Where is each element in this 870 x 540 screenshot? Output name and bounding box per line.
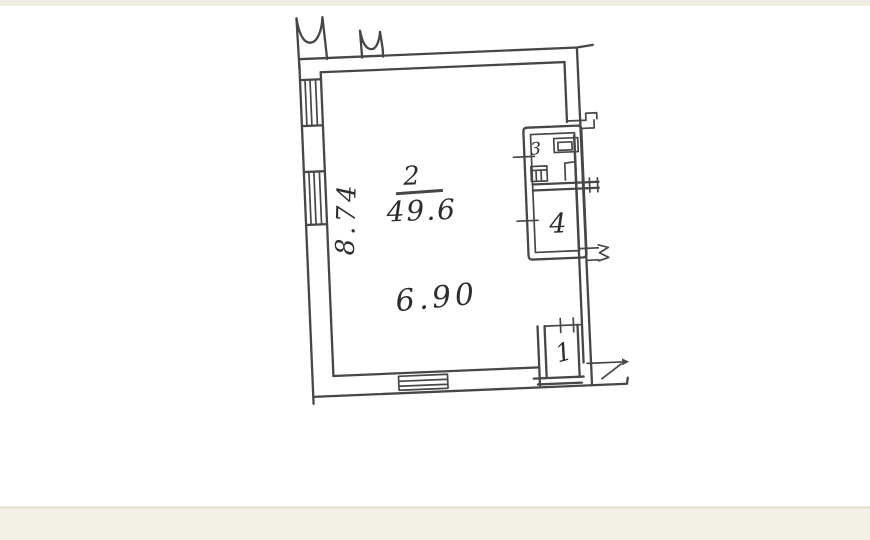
- right-wall-inner-upper: [564, 62, 567, 122]
- vent-shaft-left: [296, 17, 327, 70]
- top-wall-outer: [299, 45, 593, 59]
- right-opening-line: [587, 362, 622, 363]
- plan-sheet: 2 49.6 6.90 8.74 3 4 1: [296, 5, 630, 404]
- height-dimension-label: 8.74: [331, 181, 363, 256]
- right-opening-break: [601, 364, 622, 379]
- bottom-window-symbol: [398, 374, 448, 390]
- room-4-number-label: 4: [548, 208, 567, 240]
- entry-door-ticks: [545, 318, 582, 333]
- window-glazing-lower: [309, 172, 322, 223]
- room-1-number-label: 1: [552, 336, 575, 368]
- toilet-fixture-icon: [531, 166, 548, 182]
- wall-break-below-block: [579, 244, 609, 261]
- floor-plan-drawing: 2 49.6 6.90 8.74 3 4 1: [0, 0, 870, 540]
- scanned-floor-plan-page: 2 49.6 6.90 8.74 3 4 1: [0, 0, 870, 540]
- right-opening-arrow: [622, 358, 629, 365]
- width-dimension-label: 6.90: [394, 277, 480, 320]
- window-glazing-upper: [305, 81, 317, 125]
- room-2-area-label: 49.6: [385, 193, 458, 229]
- top-wall-inner: [321, 62, 565, 72]
- bottom-wall-outer: [313, 378, 628, 397]
- vent-shaft-right: [360, 30, 383, 58]
- divider-end-ticks: [589, 178, 598, 192]
- room-2-number-label: 2: [402, 161, 421, 192]
- room-3-number-label: 3: [530, 139, 542, 159]
